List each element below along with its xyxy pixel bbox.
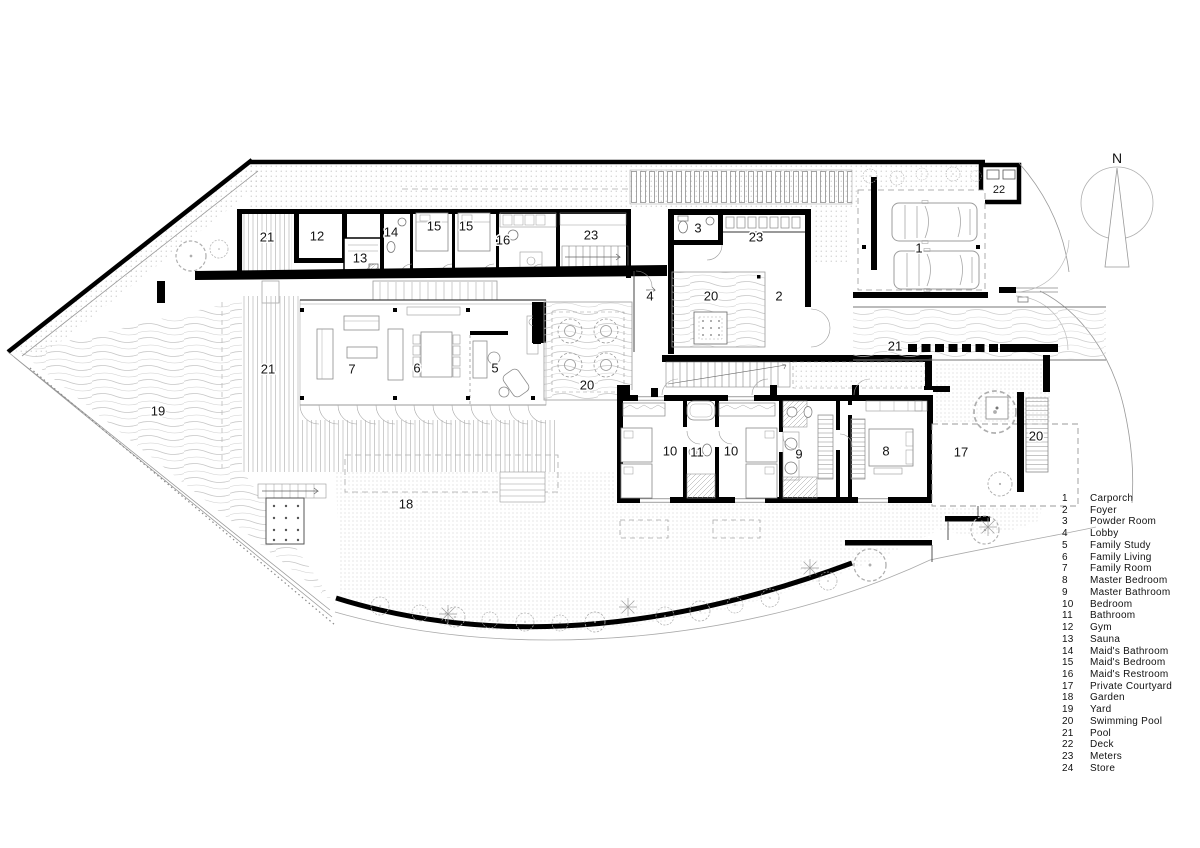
legend-label: Private Courtyard <box>1090 681 1192 693</box>
legend-item: 13Sauna <box>1062 634 1192 646</box>
legend-num: 7 <box>1062 563 1090 575</box>
legend-item: 18Garden <box>1062 692 1192 704</box>
legend-num: 9 <box>1062 587 1090 599</box>
room-label: 20 <box>580 378 594 393</box>
legend-num: 13 <box>1062 634 1090 646</box>
legend-item: 7Family Room <box>1062 563 1192 575</box>
room-label: 9 <box>795 447 802 462</box>
legend-label: Foyer <box>1090 505 1192 517</box>
room-label: 15 <box>427 219 441 234</box>
foyer-block <box>634 209 830 354</box>
central-stair <box>662 355 950 392</box>
legend-item: 15Maid's Bedroom <box>1062 657 1192 669</box>
room-label: 14 <box>384 225 398 240</box>
legend-label: Family Study <box>1090 540 1192 552</box>
legend-label: Maid's Bathroom <box>1090 646 1192 658</box>
legend-label: Powder Room <box>1090 516 1192 528</box>
legend-item: 19Yard <box>1062 704 1192 716</box>
legend-num: 4 <box>1062 528 1090 540</box>
legend-label: Family Living <box>1090 552 1192 564</box>
north-arrow: N <box>1081 150 1153 267</box>
room-label: 2 <box>775 289 782 304</box>
room-label: 6 <box>413 361 420 376</box>
legend-item: 24Store <box>1062 763 1192 775</box>
legend-num: 15 <box>1062 657 1090 669</box>
bedroom-wing <box>617 379 933 503</box>
legend-label: Store <box>1090 763 1192 775</box>
legend-item: 10Bedroom <box>1062 599 1192 611</box>
room-label: 8 <box>882 444 889 459</box>
legend-num: 8 <box>1062 575 1090 587</box>
legend-num: 14 <box>1062 646 1090 658</box>
legend-num: 23 <box>1062 751 1090 763</box>
room-label: 3 <box>694 221 701 236</box>
room-label: 21 <box>888 339 902 354</box>
room-label: 4 <box>646 289 653 304</box>
legend-num: 2 <box>1062 505 1090 517</box>
room-label: 17 <box>954 445 968 460</box>
room-label: 22 <box>993 184 1005 196</box>
legend-num: 20 <box>1062 716 1090 728</box>
carporch <box>853 177 988 298</box>
legend-item: 21Pool <box>1062 728 1192 740</box>
floor-plan-drawing: N 21 12 13 14 15 15 16 23 3 23 1 22 4 20… <box>0 0 1200 848</box>
room-label: 10 <box>663 444 677 459</box>
legend-num: 18 <box>1062 692 1090 704</box>
legend-label: Swimming Pool <box>1090 716 1192 728</box>
room-label: 7 <box>348 362 355 377</box>
legend-item: 5Family Study <box>1062 540 1192 552</box>
legend-item: 4Lobby <box>1062 528 1192 540</box>
legend: 1Carporch 2Foyer 3Powder Room 4Lobby 5Fa… <box>1062 493 1192 775</box>
legend-item: 17Private Courtyard <box>1062 681 1192 693</box>
legend-label: Maid's Bedroom <box>1090 657 1192 669</box>
room-label: 15 <box>459 219 473 234</box>
legend-num: 10 <box>1062 599 1090 611</box>
room-label: 1 <box>915 241 922 256</box>
legend-num: 19 <box>1062 704 1090 716</box>
legend-num: 1 <box>1062 493 1090 505</box>
legend-item: 3Powder Room <box>1062 516 1192 528</box>
room-label: 18 <box>399 497 413 512</box>
spine-wall <box>157 265 667 303</box>
legend-label: Meters <box>1090 751 1192 763</box>
legend-label: Master Bedroom <box>1090 575 1192 587</box>
legend-item: 11Bathroom <box>1062 610 1192 622</box>
room-label: 20 <box>704 289 718 304</box>
room-label: 23 <box>584 228 598 243</box>
legend-label: Garden <box>1090 692 1192 704</box>
legend-label: Yard <box>1090 704 1192 716</box>
room-label: 21 <box>260 230 274 245</box>
north-label: N <box>1112 150 1122 166</box>
legend-item: 23Meters <box>1062 751 1192 763</box>
legend-label: Bathroom <box>1090 610 1192 622</box>
room-label: 20 <box>1029 429 1043 444</box>
legend-label: Master Bathroom <box>1090 587 1192 599</box>
room-label: 11 <box>690 445 704 460</box>
room-label: 19 <box>151 404 165 419</box>
room-label: 16 <box>496 233 510 248</box>
floor-plan-page: N 21 12 13 14 15 15 16 23 3 23 1 22 4 20… <box>0 0 1200 848</box>
room-label: 13 <box>353 251 367 266</box>
room-label: 10 <box>724 444 738 459</box>
legend-num: 21 <box>1062 728 1090 740</box>
legend-num: 12 <box>1062 622 1090 634</box>
room-label: 21 <box>261 362 275 377</box>
legend-item: 16Maid's Restroom <box>1062 669 1192 681</box>
legend-label: Pool <box>1090 728 1192 740</box>
legend-item: 6Family Living <box>1062 552 1192 564</box>
legend-item: 8Master Bedroom <box>1062 575 1192 587</box>
legend-num: 16 <box>1062 669 1090 681</box>
legend-num: 5 <box>1062 540 1090 552</box>
legend-num: 3 <box>1062 516 1090 528</box>
legend-num: 22 <box>1062 739 1090 751</box>
legend-label: Carporch <box>1090 493 1192 505</box>
legend-label: Bedroom <box>1090 599 1192 611</box>
legend-label: Maid's Restroom <box>1090 669 1192 681</box>
legend-item: 9Master Bathroom <box>1062 587 1192 599</box>
legend-item: 20Swimming Pool <box>1062 716 1192 728</box>
legend-label: Lobby <box>1090 528 1192 540</box>
legend-item: 14Maid's Bathroom <box>1062 646 1192 658</box>
legend-item: 1Carporch <box>1062 493 1192 505</box>
legend-num: 6 <box>1062 552 1090 564</box>
legend-label: Gym <box>1090 622 1192 634</box>
legend-num: 17 <box>1062 681 1090 693</box>
legend-item: 12Gym <box>1062 622 1192 634</box>
legend-item: 22Deck <box>1062 739 1192 751</box>
legend-item: 2Foyer <box>1062 505 1192 517</box>
legend-label: Deck <box>1090 739 1192 751</box>
room-label: 23 <box>749 230 763 245</box>
legend-num: 11 <box>1062 610 1090 622</box>
living-pavilion <box>242 296 558 502</box>
legend-label: Sauna <box>1090 634 1192 646</box>
legend-num: 24 <box>1062 763 1090 775</box>
room-label: 12 <box>310 229 324 244</box>
legend-label: Family Room <box>1090 563 1192 575</box>
room-label: 5 <box>491 361 498 376</box>
